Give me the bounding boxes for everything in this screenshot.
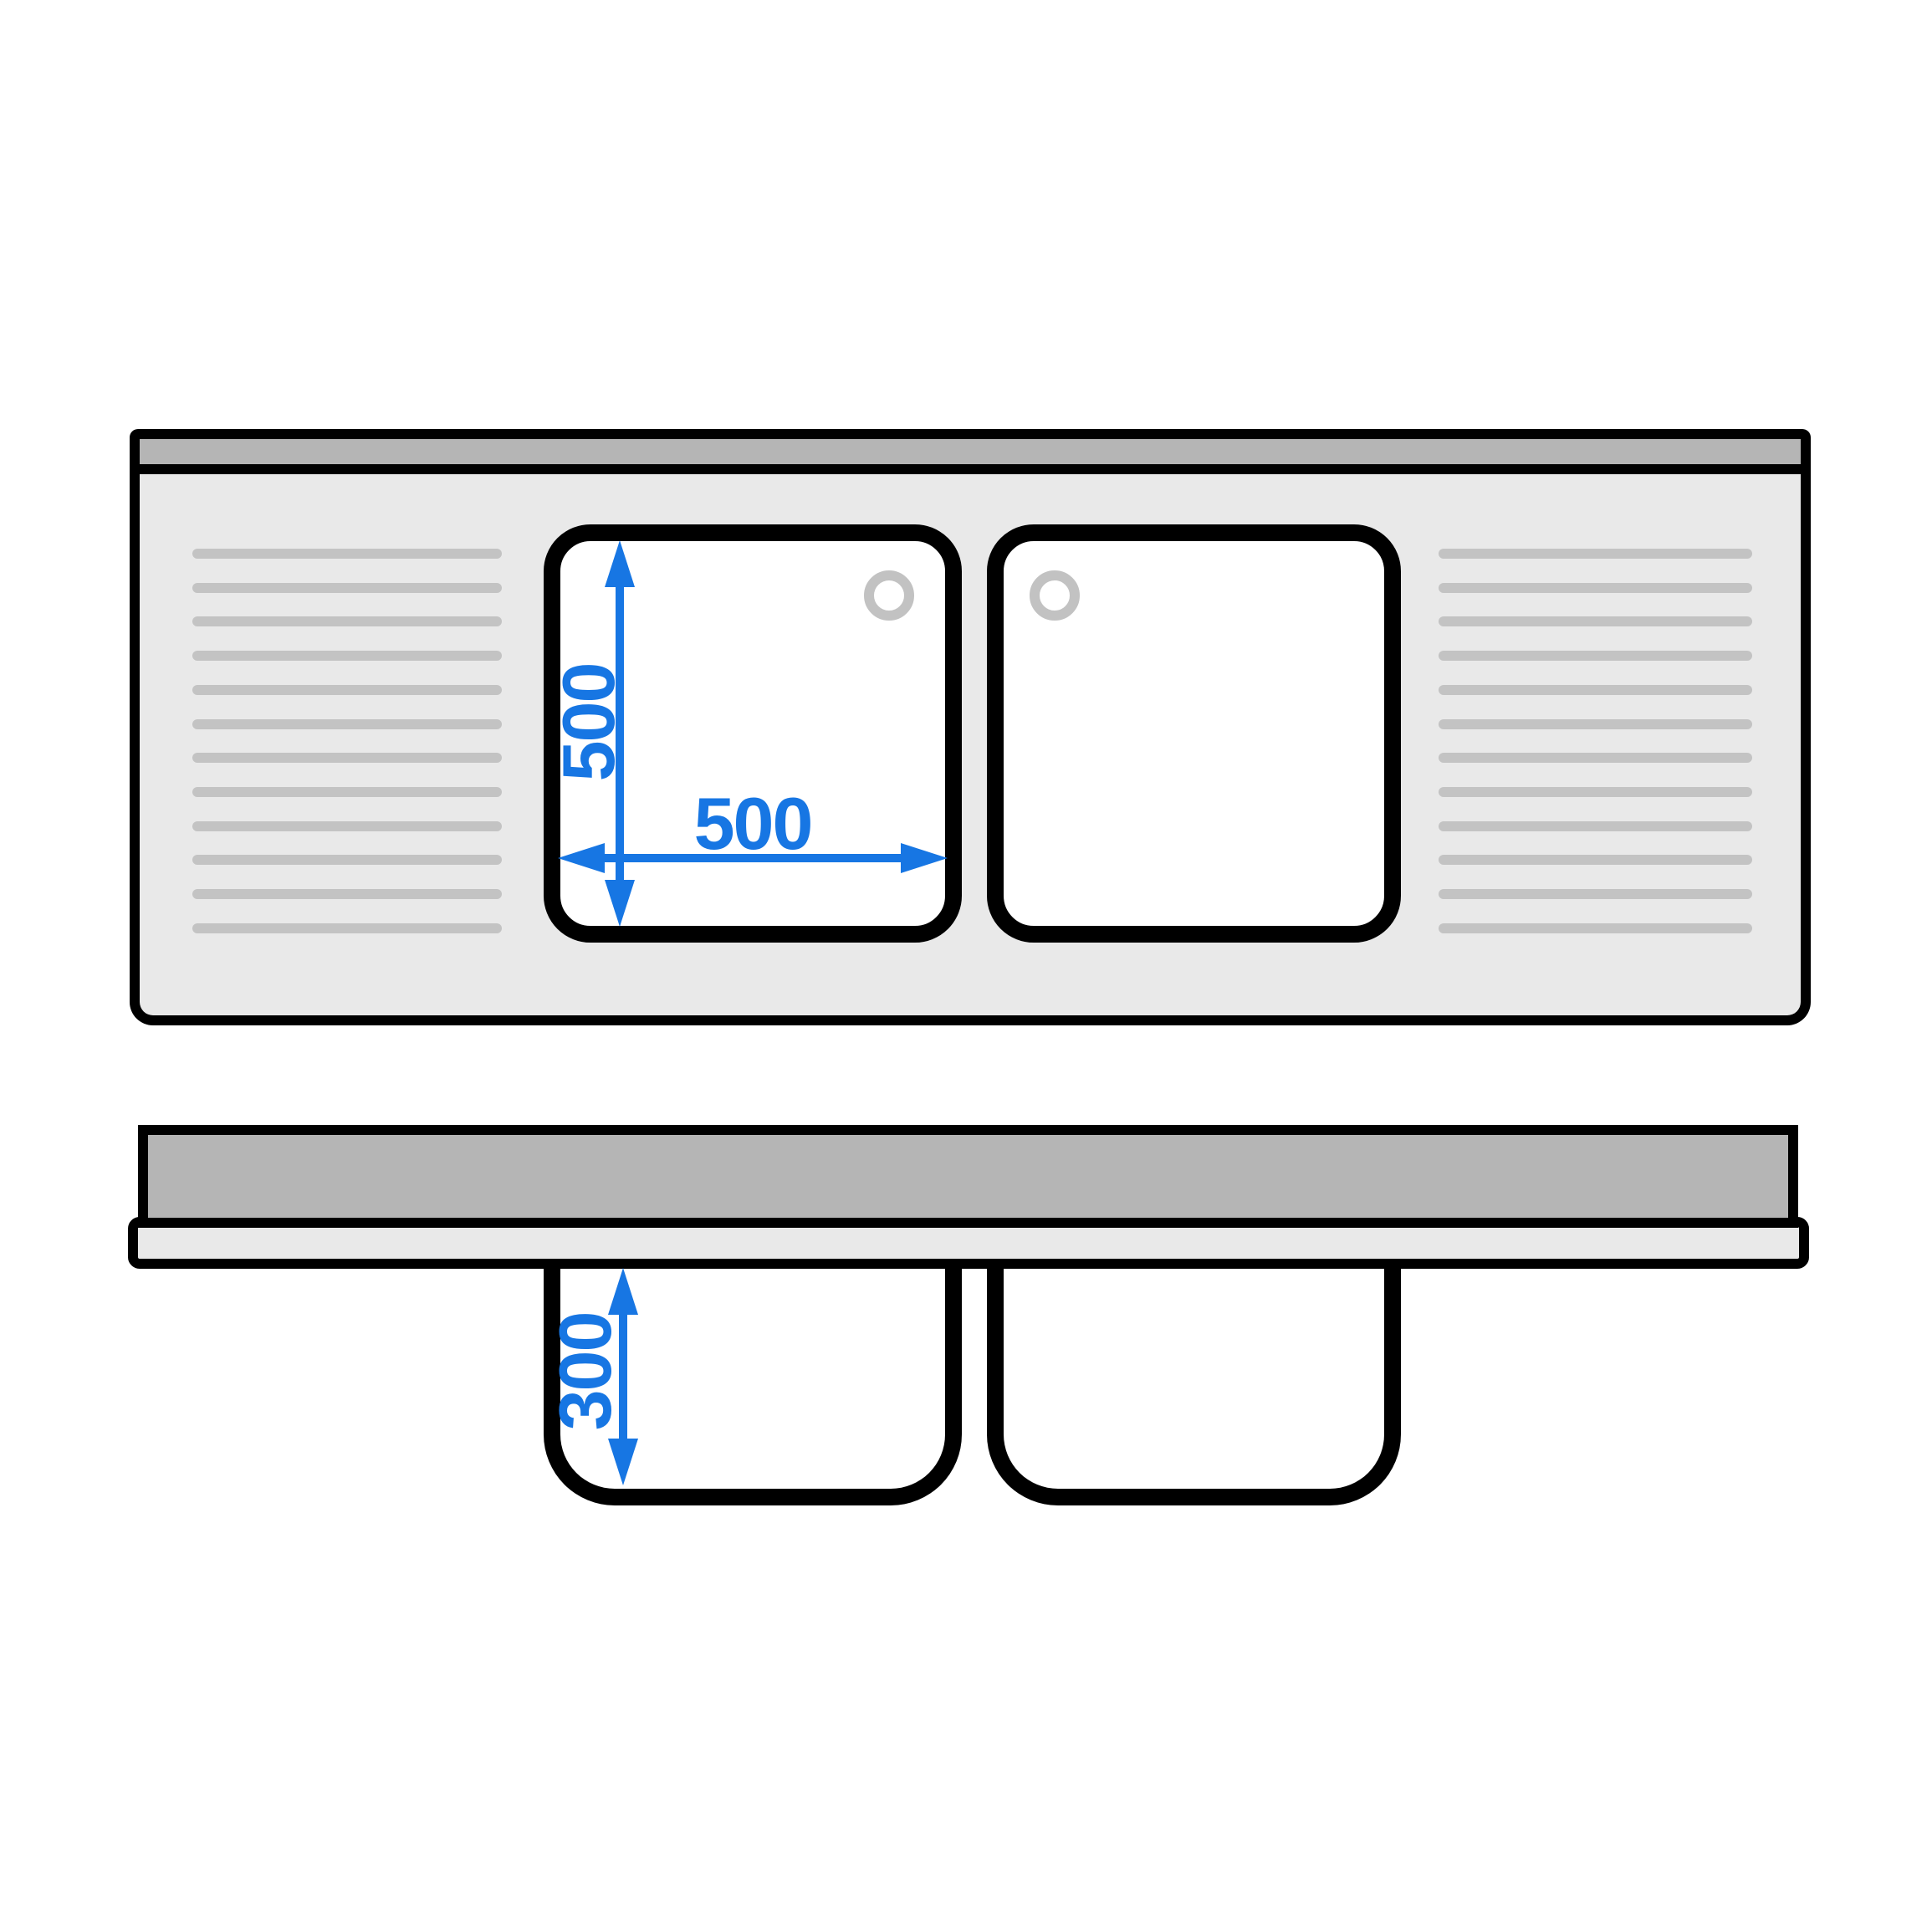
- drainboard-groove: [1439, 855, 1752, 865]
- drainboard-groove: [192, 753, 502, 763]
- side-right-bowl: [987, 1269, 1401, 1505]
- drainboard-groove: [1439, 616, 1752, 626]
- drainboard-groove: [1439, 651, 1752, 661]
- drainboard-groove: [1439, 923, 1752, 933]
- drainboard-groove: [192, 855, 502, 865]
- left-drainboard-grooves: [192, 549, 502, 942]
- drainboard-groove: [1439, 787, 1752, 797]
- drainboard-groove: [192, 719, 502, 729]
- drainboard-groove: [192, 821, 502, 831]
- basin-depth-label: 500: [543, 639, 635, 806]
- drainboard-groove: [192, 685, 502, 695]
- drainboard-groove: [192, 549, 502, 559]
- drainboard-groove: [1439, 685, 1752, 695]
- right-drainboard-grooves: [1439, 549, 1752, 942]
- plan-view-splashback-strip: [140, 439, 1801, 464]
- right-drain-hole-icon: [1030, 570, 1080, 621]
- drainboard-groove: [1439, 821, 1752, 831]
- drainboard-groove: [192, 651, 502, 661]
- bowl-height-label: 300: [539, 1288, 631, 1455]
- left-drain-hole-icon: [864, 570, 914, 621]
- drainboard-groove: [1439, 549, 1752, 559]
- basin-width-label: 500: [669, 778, 836, 870]
- sink-technical-drawing: 500 500 300: [0, 0, 1932, 1932]
- drainboard-groove: [192, 787, 502, 797]
- drainboard-groove: [1439, 889, 1752, 899]
- drainboard-groove: [192, 889, 502, 899]
- drainboard-groove: [192, 583, 502, 593]
- drainboard-groove: [192, 923, 502, 933]
- drainboard-groove: [1439, 719, 1752, 729]
- drainboard-groove: [1439, 583, 1752, 593]
- side-splashback: [138, 1125, 1798, 1228]
- plan-view-splashback-edge-line: [140, 464, 1801, 474]
- drainboard-groove: [192, 616, 502, 626]
- drainboard-groove: [1439, 753, 1752, 763]
